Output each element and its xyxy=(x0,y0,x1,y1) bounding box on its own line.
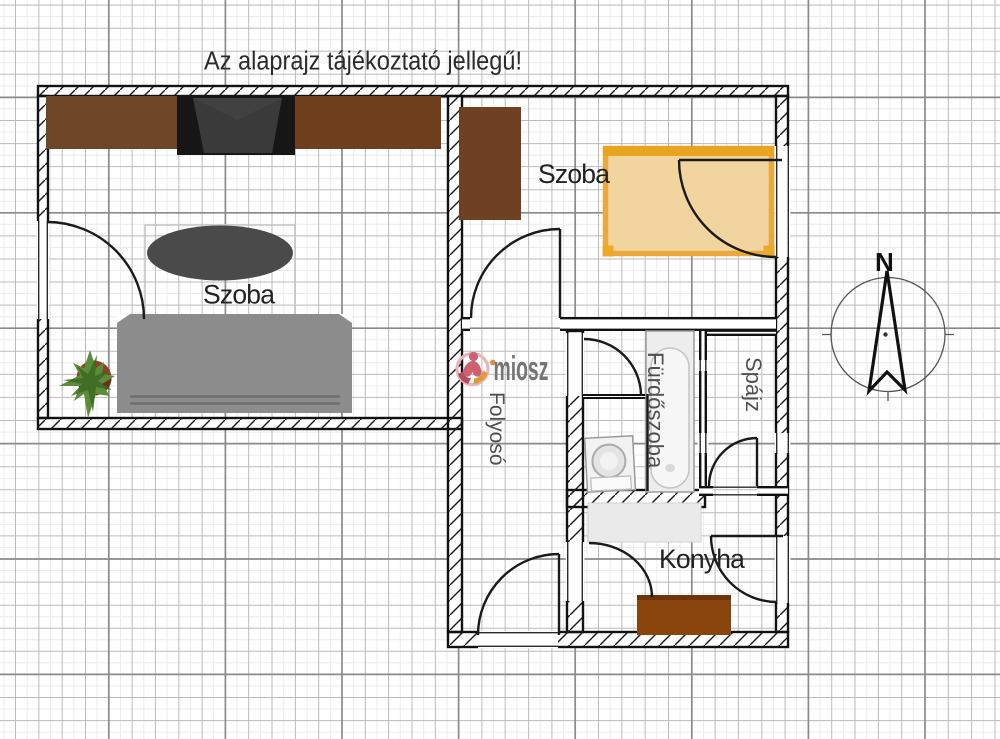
svg-text:N: N xyxy=(875,247,894,277)
svg-text:Fürdőszoba: Fürdőszoba xyxy=(643,352,668,469)
svg-text:Folyosó: Folyosó xyxy=(485,392,508,466)
svg-text:Az alaprajz tájékoztató jelleg: Az alaprajz tájékoztató jellegű! xyxy=(204,48,522,76)
svg-text:Spájz: Spájz xyxy=(741,357,766,412)
svg-text:Szoba: Szoba xyxy=(203,280,275,310)
svg-text:Konyha: Konyha xyxy=(659,544,745,574)
svg-text:miosz: miosz xyxy=(494,349,549,387)
svg-text:Szoba: Szoba xyxy=(538,159,610,189)
